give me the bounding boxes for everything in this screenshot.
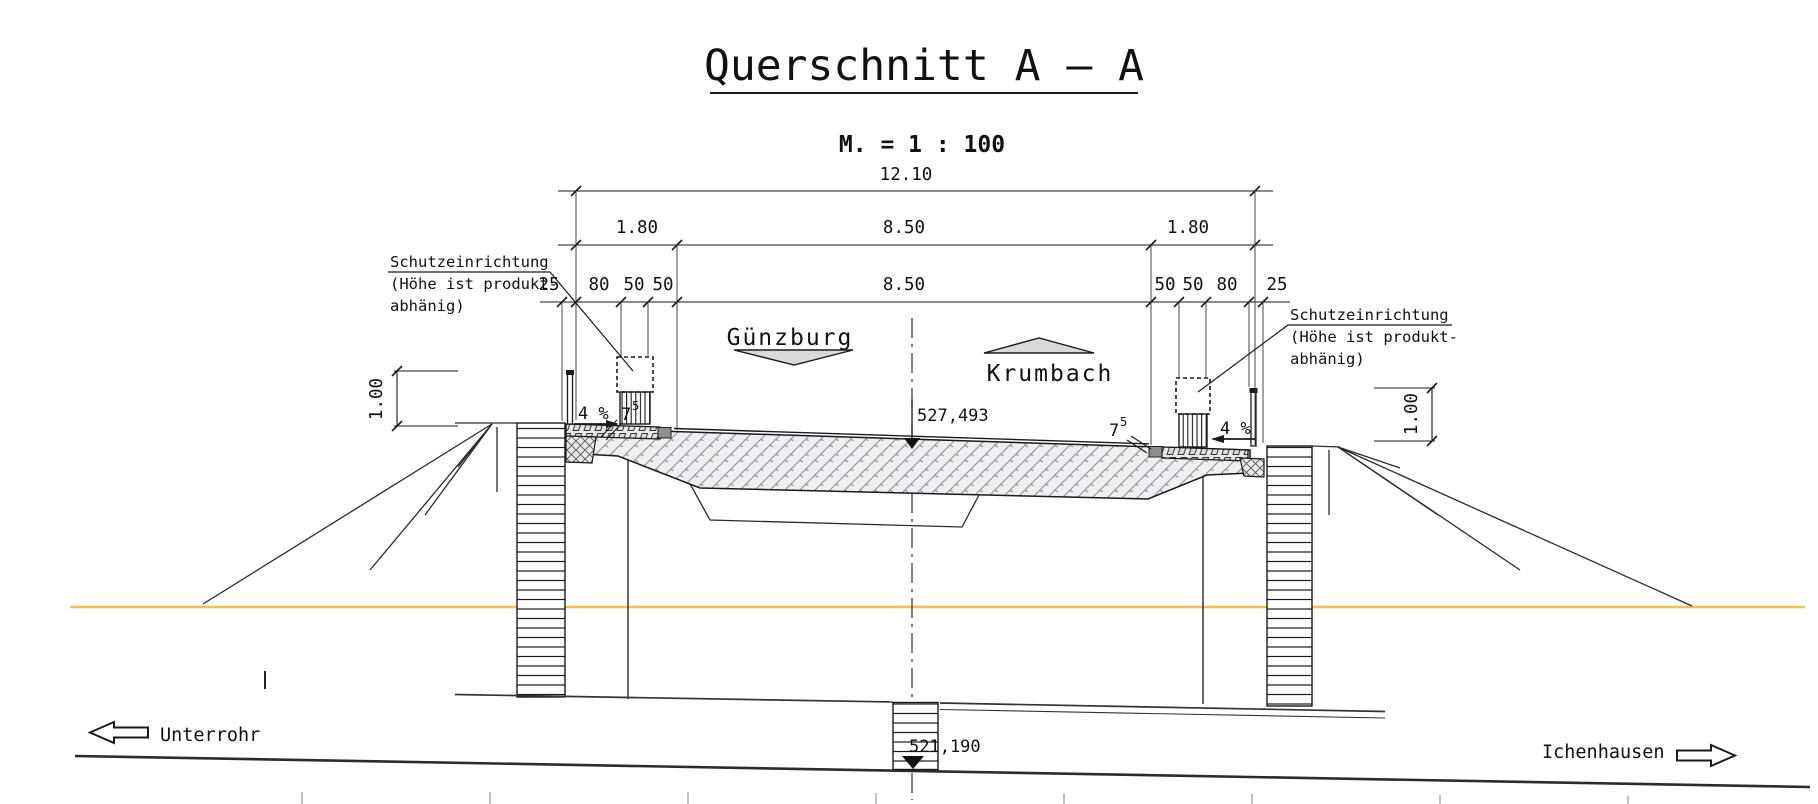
right-guard-label-1: Schutzeinrichtung [1290, 306, 1449, 324]
dim-row3-8: 80 [1216, 275, 1237, 295]
road-left-label: Unterrohr [160, 725, 260, 746]
dim-row3-6: 50 [1154, 275, 1175, 295]
central-shaft: 521,190 [893, 703, 981, 770]
left-abutment-wall [517, 423, 565, 697]
right-embankment [1312, 446, 1692, 606]
right-arrow-icon [1677, 745, 1735, 766]
right-cap [1162, 447, 1248, 461]
right-slope-label: 4 % [1220, 419, 1251, 439]
direction-krumbach: Krumbach [984, 338, 1113, 387]
station-ticks [302, 792, 1628, 804]
road-destination-right: Ichenhausen [1542, 742, 1735, 766]
technical-drawing: 4 % 4 % 7 5 7 5 521,190 527,493 [0, 0, 1818, 804]
right-guard-envelope [1176, 378, 1210, 414]
right-railing-post-cap [1250, 388, 1258, 393]
dim-row3-3: 50 [623, 275, 644, 295]
right-curb-note-base: 7 [1109, 421, 1119, 441]
right-height-label: 1.00 [1402, 393, 1422, 435]
dim-row2-center: 8.50 [883, 218, 925, 238]
left-guard-label-3: abhänig) [390, 297, 465, 315]
base-elevation-label: 521,190 [909, 737, 981, 757]
right-slope-arrow-icon [1211, 435, 1224, 443]
left-railing-post-cap [566, 370, 574, 375]
left-curb [658, 428, 671, 439]
road-destination-left: Unterrohr [90, 722, 260, 746]
right-guard-label-3: abhänig) [1290, 350, 1365, 368]
right-height-dimension: 1.00 [1374, 383, 1437, 446]
dim-row3-9: 25 [1266, 275, 1287, 295]
right-slope-annotation: 4 % [1211, 419, 1256, 443]
title-block: Querschnitt A – A M. = 1 : 100 [704, 41, 1144, 158]
dim-row2-right: 1.80 [1167, 218, 1209, 238]
drawing-sheet: 4 % 4 % 7 5 7 5 521,190 527,493 [0, 0, 1818, 804]
right-curb [1149, 447, 1162, 458]
dim-row3-2: 80 [588, 275, 609, 295]
left-slope-label: 4 % [578, 404, 609, 424]
left-guard-callout: Schutzeinrichtung (Höhe ist produkt- abh… [388, 253, 633, 371]
deck-elevation-label: 527,493 [917, 406, 989, 426]
direction-krumbach-label: Krumbach [987, 361, 1114, 387]
direction-krumbach-triangle-icon [984, 338, 1094, 353]
dim-row3-7: 50 [1182, 275, 1203, 295]
right-guard-callout: Schutzeinrichtung (Höhe ist produkt- abh… [1198, 306, 1458, 392]
road-right-label: Ichenhausen [1542, 742, 1665, 763]
direction-guenzburg-triangle-icon [734, 350, 853, 365]
dim-row2-left: 1.80 [616, 218, 658, 238]
right-guard-label-2: (Höhe ist produkt- [1290, 328, 1458, 346]
left-guard-label-1: Schutzeinrichtung [390, 253, 549, 271]
lower-road-far-edge-left [455, 695, 893, 703]
dimension-block: 12.10 1.80 8.50 1.80 25 80 50 50 8.50 50… [538, 165, 1290, 445]
left-curb-note-base: 7 [621, 405, 631, 425]
left-guard-label-2: (Höhe ist produkt- [390, 275, 558, 293]
drawing-scale: M. = 1 : 100 [839, 132, 1005, 158]
left-embankment [203, 423, 517, 604]
left-railing-post [568, 374, 573, 424]
drawing-title: Querschnitt A – A [704, 41, 1144, 91]
dim-total: 12.10 [880, 165, 933, 185]
direction-guenzburg: Günzburg [727, 325, 854, 365]
left-arrow-icon [90, 722, 148, 743]
left-end-block [566, 436, 596, 463]
left-curb-note-sup: 5 [632, 399, 639, 413]
right-end-block [1240, 458, 1264, 477]
direction-guenzburg-label: Günzburg [727, 325, 854, 351]
right-abutment-wall [1267, 446, 1312, 706]
left-height-label: 1.00 [367, 378, 387, 420]
left-height-dimension: 1.00 [367, 366, 458, 431]
left-guard-envelope [617, 357, 653, 392]
dim-row3-5: 8.50 [883, 275, 925, 295]
right-guard-base [1179, 414, 1207, 447]
right-curb-note-sup: 5 [1120, 415, 1127, 429]
dim-row3-4: 50 [652, 275, 673, 295]
